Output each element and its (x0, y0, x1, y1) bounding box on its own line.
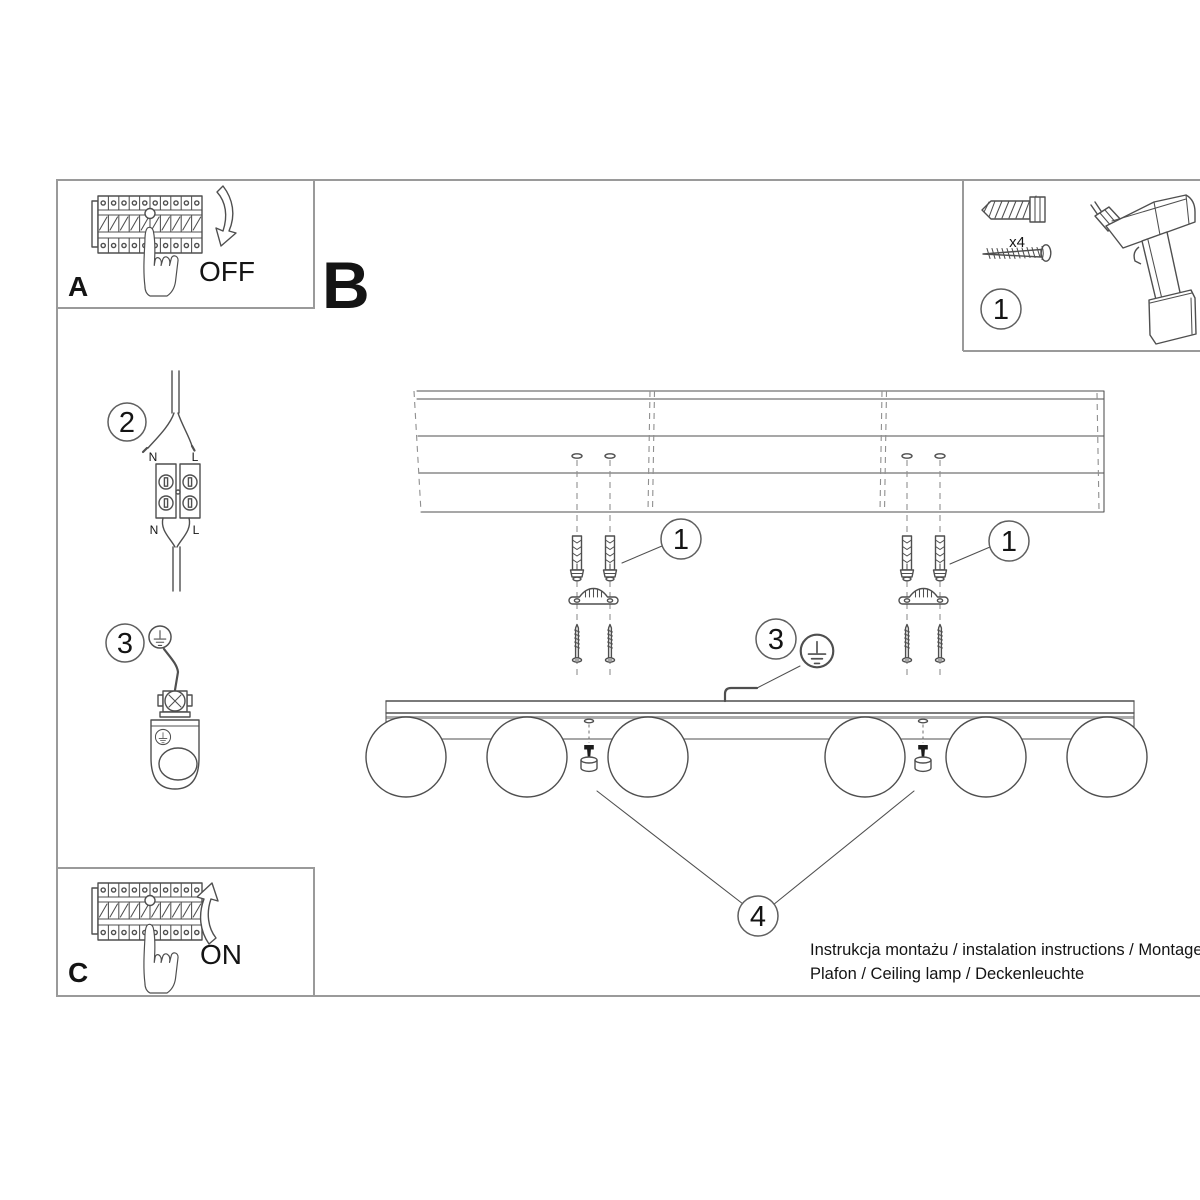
panel-a-label: A (68, 271, 88, 302)
ground-symbol-icon (149, 626, 171, 648)
ceiling-hole (935, 454, 945, 458)
ground-wire (164, 649, 178, 690)
arrow-down-icon (216, 186, 236, 246)
page-frame (57, 180, 1200, 996)
panel-a: A OFF (68, 186, 255, 302)
mounting-screw (936, 625, 945, 663)
mounting-screw (573, 625, 582, 663)
decor-screw-cap (915, 719, 931, 771)
mount-bracket-end (151, 720, 199, 789)
panel-tools: x4 1 (981, 195, 1196, 344)
wall-anchor (604, 536, 617, 581)
decor-screws-callout: 4 (750, 901, 766, 933)
ceiling-hole (605, 454, 615, 458)
terminal-l-bottom-label: L (193, 523, 200, 537)
step-ground: 3 (106, 624, 199, 789)
mounting-screw (903, 625, 912, 663)
terminal-n-bottom-label: N (150, 523, 159, 537)
ground-callout-main: 3 (768, 624, 784, 656)
panel-c: C ON (68, 883, 242, 993)
lamp-globe (825, 717, 905, 797)
ground-callout-number: 3 (117, 628, 133, 660)
ceiling-hole (572, 454, 582, 458)
footer-line-1: Instrukcja montażu / instalation instruc… (810, 941, 1200, 959)
assembly-diagram: 1 1 3 4 (366, 391, 1147, 936)
lamp-ground-wire (725, 688, 757, 701)
instruction-sheet: A OFF B x4 1 (0, 0, 1200, 1200)
anchors-callout-right: 1 (1001, 526, 1017, 558)
terminal-l-top-label: L (192, 450, 199, 464)
ceiling-lamp (366, 701, 1147, 797)
terminal-block (156, 464, 200, 518)
lamp-globe (487, 717, 567, 797)
supply-cable-top (172, 371, 179, 413)
supply-wires-top (148, 413, 192, 448)
mounting-bracket (569, 589, 618, 605)
lamp-globe (366, 717, 446, 797)
tools-callout-number: 1 (993, 294, 1009, 326)
lamp-globe (946, 717, 1026, 797)
footer-line-2: Plafon / Ceiling lamp / Deckenleuchte (810, 965, 1084, 983)
footer: Instrukcja montażu / instalation instruc… (810, 941, 1200, 983)
panel-c-label: C (68, 957, 88, 988)
wall-plug-icon (982, 196, 1045, 222)
section-b-label: B (322, 248, 370, 322)
ground-terminal (158, 691, 192, 717)
anchors-callout-left: 1 (673, 524, 689, 556)
lamp-globe (1067, 717, 1147, 797)
lamp-wires-bottom (162, 518, 189, 547)
wall-anchor (901, 536, 914, 581)
lamp-globe (608, 717, 688, 797)
decor-screw-cap (581, 719, 597, 771)
step-wiring: 2 N L N L (108, 371, 200, 591)
wiring-callout-number: 2 (119, 407, 135, 439)
ceiling (414, 391, 1104, 512)
lamp-cable-bottom (173, 547, 180, 591)
wall-anchor (934, 536, 947, 581)
off-label: OFF (199, 256, 255, 287)
terminal-n-top-label: N (149, 450, 158, 464)
ground-symbol-icon (801, 635, 834, 668)
ceiling-hole (902, 454, 912, 458)
mounting-bracket (899, 589, 948, 605)
wall-anchor (571, 536, 584, 581)
on-label: ON (200, 939, 242, 970)
drill-icon (1091, 195, 1196, 344)
mounting-screw (606, 625, 615, 663)
